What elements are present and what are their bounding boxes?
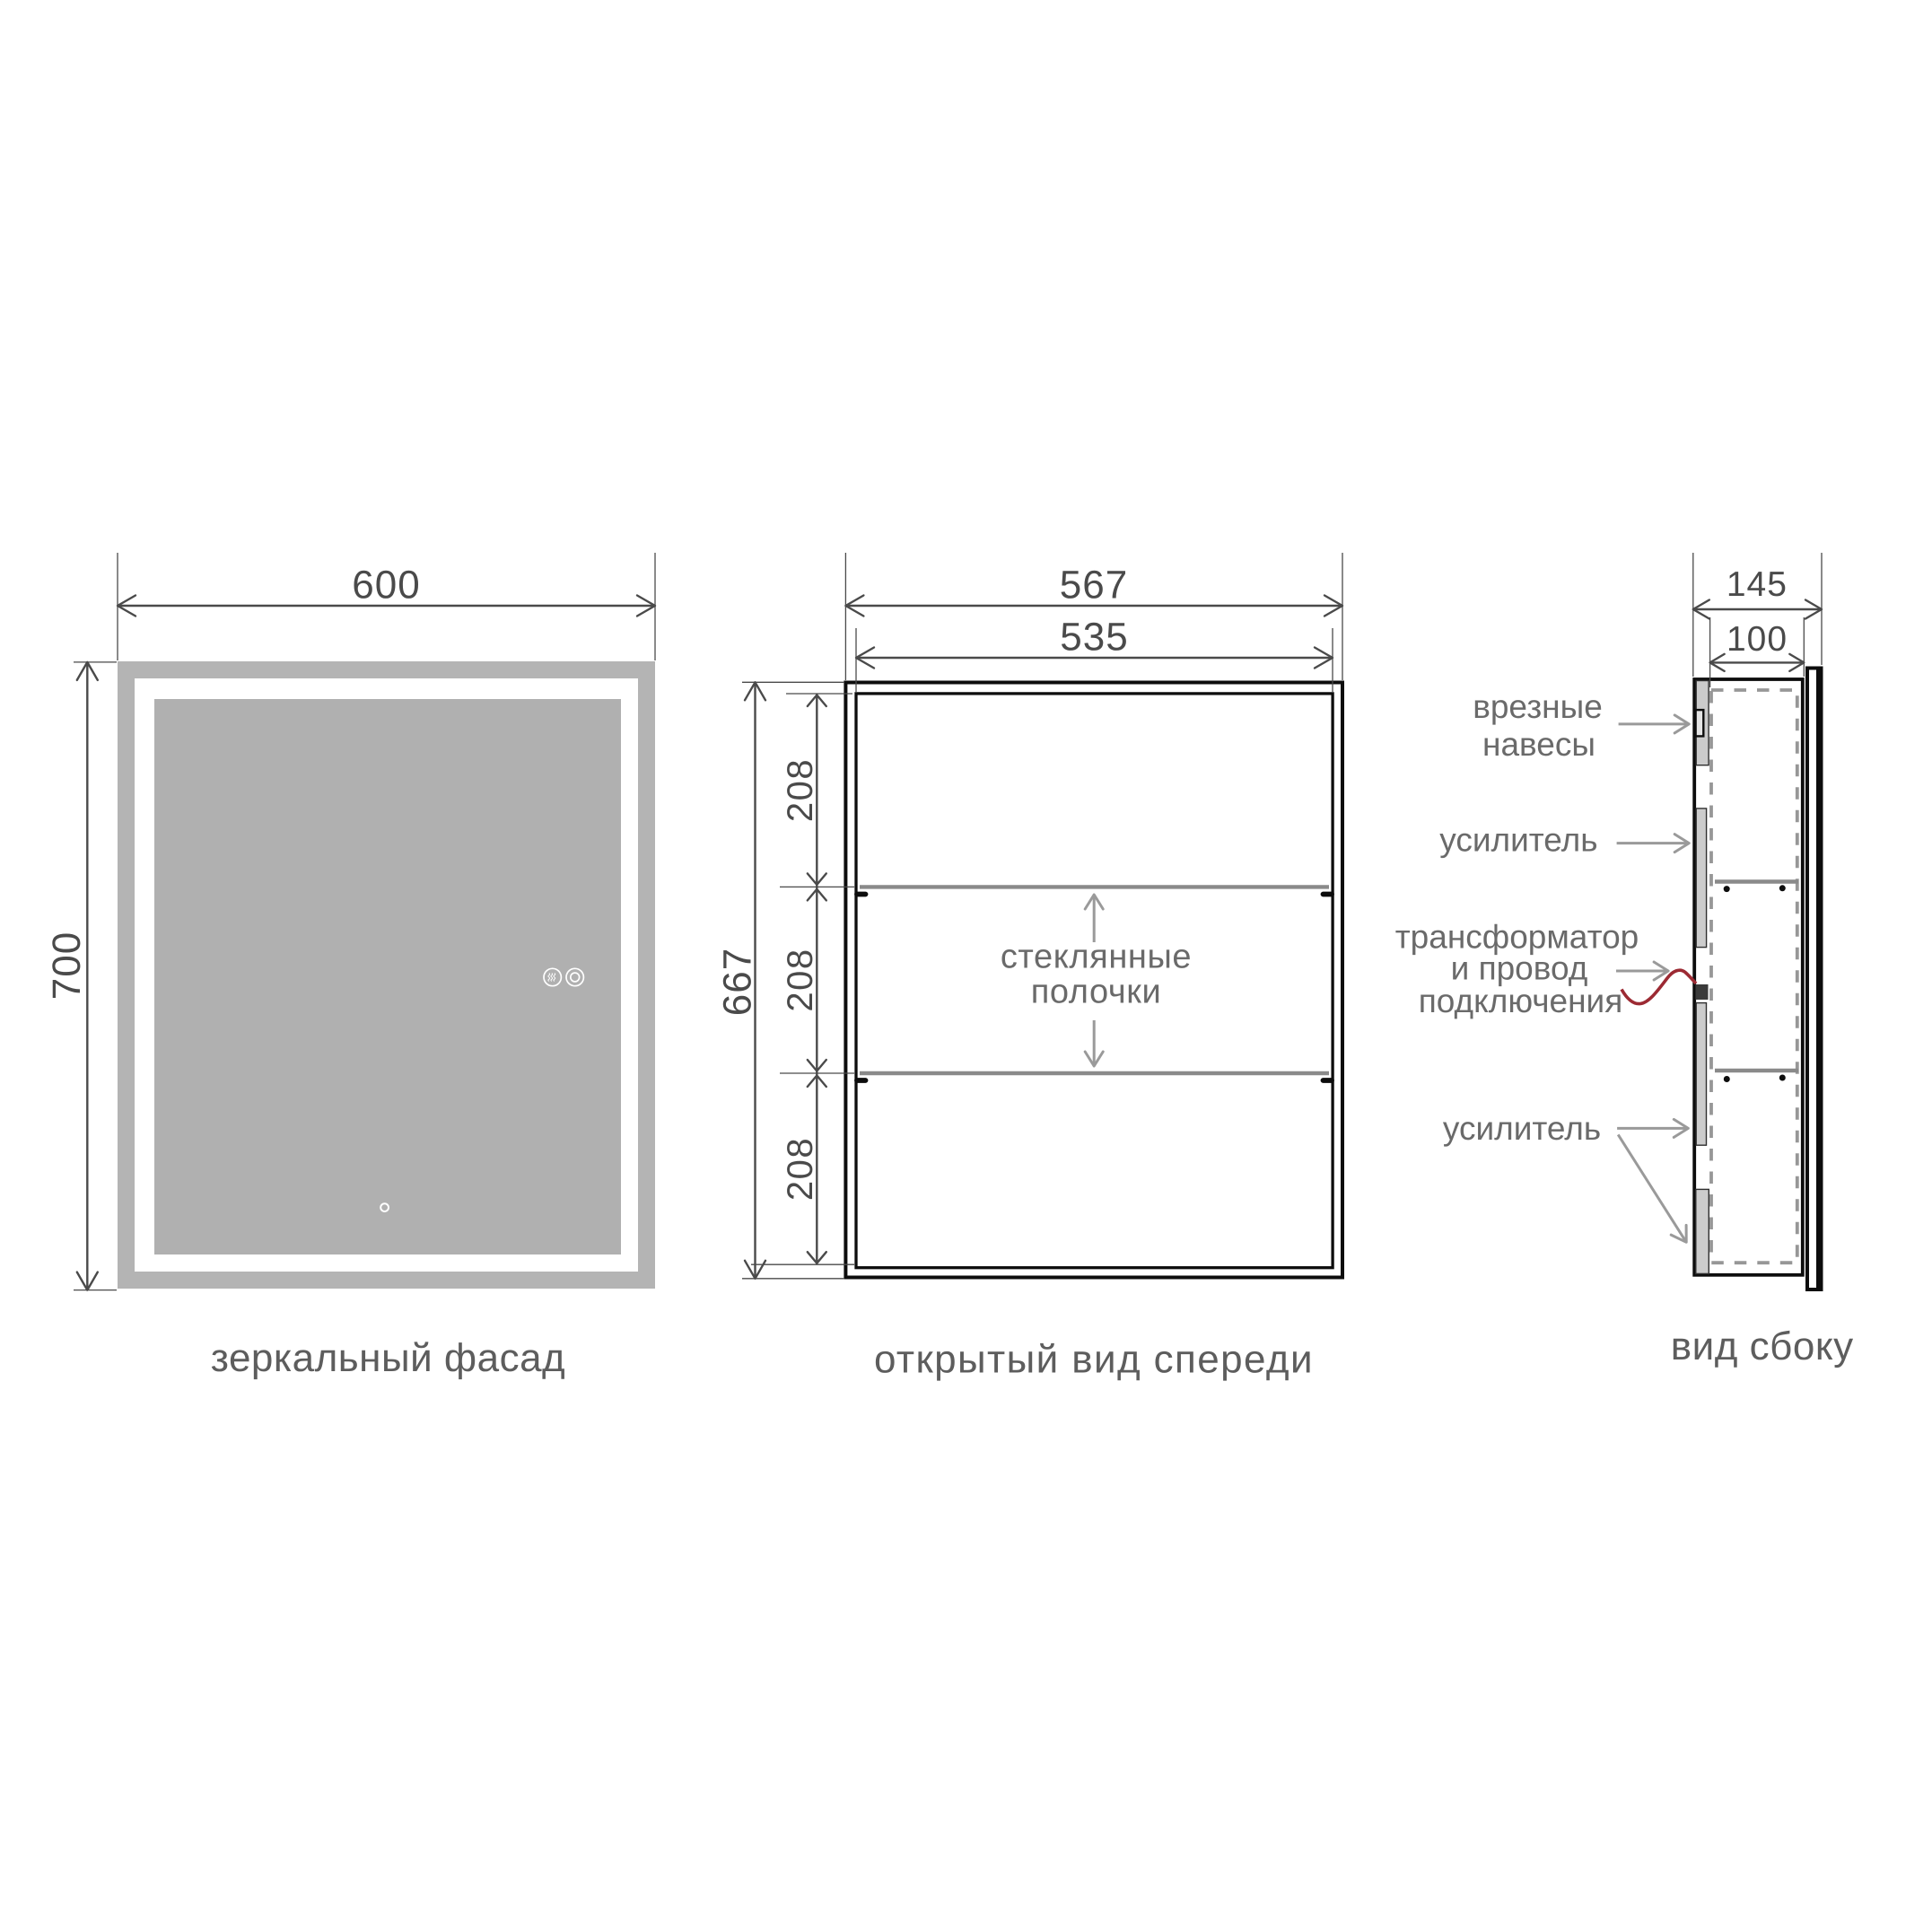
svg-text:стеклянные: стеклянные [1001,939,1192,976]
svg-text:100: 100 [1727,620,1788,659]
svg-text:усилитель: усилитель [1439,822,1597,859]
svg-text:145: 145 [1727,565,1788,604]
svg-text:535: 535 [1060,616,1128,660]
svg-text:и провод: и провод [1451,950,1588,987]
svg-text:усилитель: усилитель [1443,1110,1601,1147]
svg-text:208: 208 [781,948,820,1011]
svg-text:600: 600 [352,564,420,608]
svg-text:вид сбоку: вид сбоку [1671,1324,1854,1368]
svg-text:подключения: подключения [1419,983,1623,1019]
svg-text:навесы: навесы [1482,726,1595,763]
svg-text:567: 567 [1060,564,1128,608]
svg-text:полочки: полочки [1031,974,1162,1011]
svg-text:700: 700 [45,931,89,1000]
svg-text:врезные: врезные [1473,688,1603,725]
svg-text:667: 667 [716,948,760,1016]
svg-text:208: 208 [781,1137,820,1201]
svg-text:открытый вид спереди: открытый вид спереди [874,1338,1314,1382]
svg-text:208: 208 [781,758,820,822]
svg-text:зеркальный фасад: зеркальный фасад [211,1336,565,1380]
